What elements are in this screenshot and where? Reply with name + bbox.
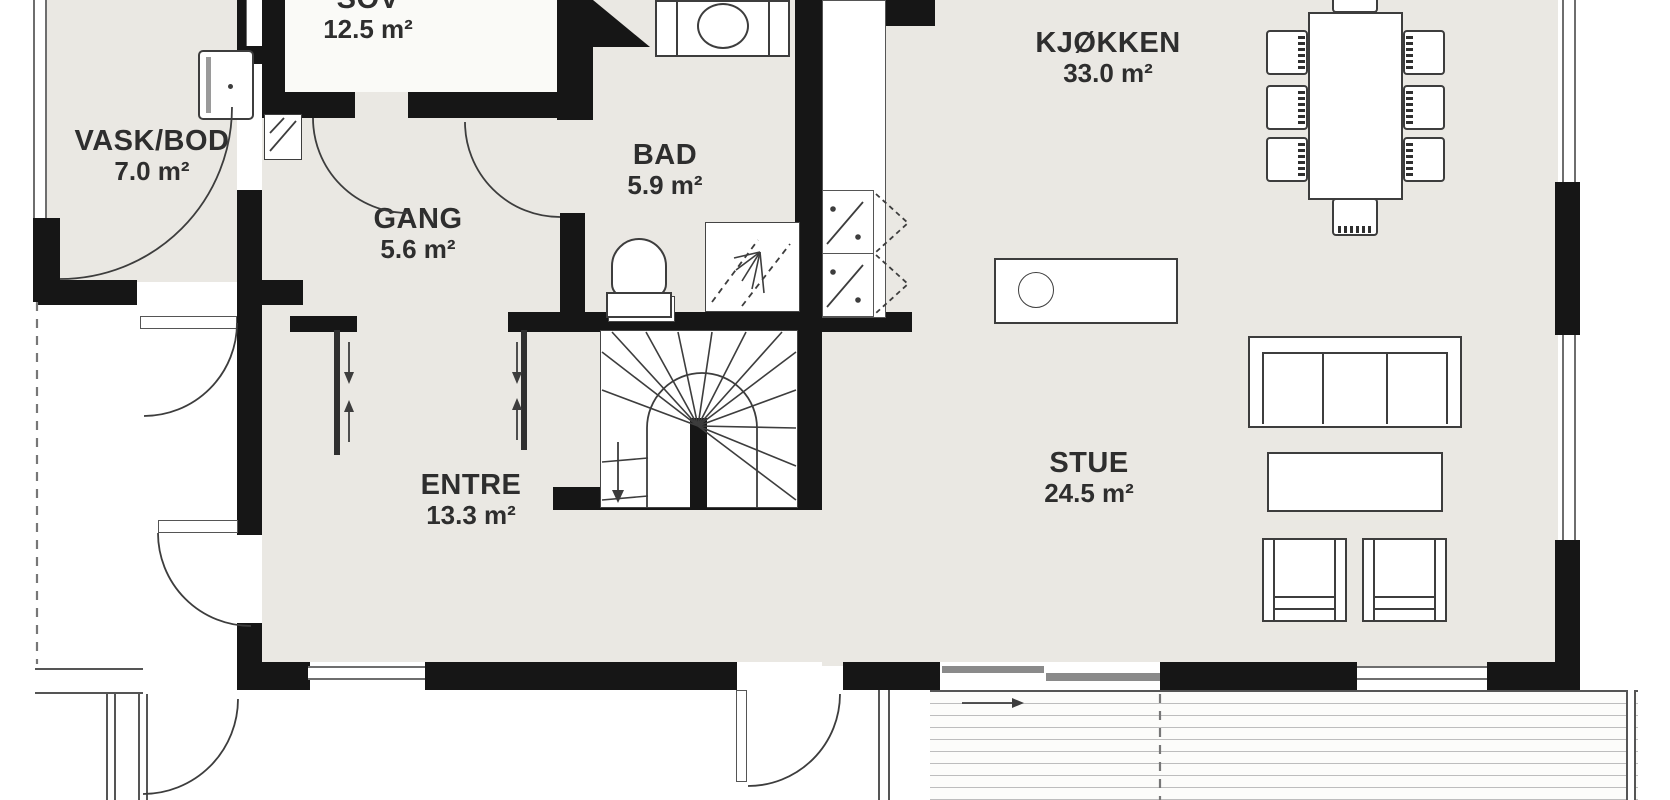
porch-wall — [35, 668, 143, 694]
door-arc — [748, 694, 840, 786]
door-leaf — [140, 316, 237, 329]
sofa-seat-divider — [1322, 354, 1324, 424]
dining-chair — [1266, 137, 1308, 182]
room-label-kjokken: KJØKKEN 33.0 m² — [1028, 28, 1188, 88]
dining-chair — [1266, 85, 1308, 130]
dining-chair — [1403, 30, 1445, 75]
vanity-divider — [676, 2, 678, 55]
armchair-front — [1273, 608, 1336, 610]
window — [308, 666, 425, 680]
door-arc — [144, 323, 237, 416]
room-area: 13.3 m² — [391, 501, 551, 530]
armchair-front — [1373, 608, 1436, 610]
door-arc — [158, 533, 251, 626]
washing-machine-door — [206, 57, 211, 113]
stair-newel — [690, 418, 707, 508]
kitchen-island-sink — [1018, 272, 1054, 308]
room-area: 12.5 m² — [288, 15, 448, 44]
cooktop-cell — [822, 253, 874, 317]
room-label-bad: BAD 5.9 m² — [585, 140, 745, 200]
dining-table — [1308, 12, 1403, 200]
room-kjokken-stue — [822, 0, 1558, 666]
sofa-back — [1262, 352, 1448, 354]
sofa — [1248, 336, 1462, 428]
room-area: 33.0 m² — [1028, 59, 1188, 88]
wall-segment — [290, 316, 357, 332]
sofa-seat-divider — [1386, 354, 1388, 424]
water-heater — [264, 114, 302, 160]
wall-segment — [262, 0, 285, 92]
terrace-deck — [930, 690, 1638, 800]
room-label-vask-bod: VASK/BOD 7.0 m² — [72, 126, 232, 186]
room-name: KJØKKEN — [1028, 28, 1188, 59]
sliding-door-leaf — [334, 330, 340, 455]
wall-segment — [557, 0, 593, 120]
wall-segment — [425, 662, 737, 690]
room-label-sov: SOV 12.5 m² — [288, 0, 448, 44]
sliding-door-panel — [1046, 673, 1160, 681]
sliding-door-panel — [942, 666, 1044, 673]
chair-back — [1406, 91, 1413, 124]
room-label-stue: STUE 24.5 m² — [1009, 448, 1169, 508]
window — [1562, 0, 1576, 182]
floor-plan: SOV 12.5 m² VASK/BOD 7.0 m² GANG 5.6 m² … — [0, 0, 1670, 800]
coffee-table — [1267, 452, 1443, 512]
room-name: BAD — [585, 140, 745, 171]
chair-back — [1298, 91, 1305, 124]
vanity-sink — [697, 3, 749, 49]
dining-chair — [1332, 0, 1378, 13]
room-name: SOV — [288, 0, 448, 15]
wall-segment — [843, 662, 940, 690]
room-name: GANG — [338, 204, 498, 235]
dining-chair — [1403, 85, 1445, 130]
toilet-tank — [606, 292, 672, 318]
deck-edge — [1626, 690, 1636, 800]
cooktop-cell — [822, 190, 874, 254]
chair-back — [1298, 143, 1305, 176]
wall-segment — [1555, 182, 1580, 335]
porch-wall — [106, 694, 116, 800]
porch-wall — [138, 694, 148, 800]
armchair — [1362, 538, 1447, 622]
chair-back — [1406, 143, 1413, 176]
wall-segment — [237, 623, 262, 662]
entry-door-leaf — [736, 690, 747, 782]
chair-back — [1406, 36, 1413, 69]
wall-segment — [237, 190, 262, 302]
vanity-divider — [768, 2, 770, 55]
wall-segment — [237, 305, 262, 535]
porch-wall — [878, 688, 890, 800]
window — [1357, 666, 1487, 680]
door-leaf — [158, 520, 238, 533]
room-below-stair — [557, 510, 822, 662]
wall-segment — [560, 213, 585, 312]
room-area: 24.5 m² — [1009, 479, 1169, 508]
room-area: 5.9 m² — [585, 171, 745, 200]
room-name: ENTRE — [391, 470, 551, 501]
shower — [705, 222, 800, 312]
armchair — [1262, 538, 1347, 622]
room-label-gang: GANG 5.6 m² — [338, 204, 498, 264]
room-label-entre: ENTRE 13.3 m² — [391, 470, 551, 530]
wall-segment — [797, 315, 822, 510]
sliding-door-leaf — [521, 330, 527, 450]
sofa-arm — [1262, 352, 1264, 424]
armchair-front — [1373, 596, 1436, 598]
wall-segment — [1555, 540, 1580, 690]
room-name: VASK/BOD — [72, 126, 232, 157]
chair-back — [1298, 36, 1305, 69]
room-area: 7.0 m² — [72, 157, 232, 186]
window — [1562, 335, 1576, 540]
room-name: STUE — [1009, 448, 1169, 479]
chair-back — [1338, 226, 1372, 233]
dining-chair — [1266, 30, 1308, 75]
dining-chair — [1403, 137, 1445, 182]
washing-machine — [198, 50, 254, 120]
toilet-bowl — [611, 238, 667, 298]
room-area: 5.6 m² — [338, 235, 498, 264]
door-arc — [143, 699, 238, 794]
wall-segment — [237, 662, 310, 690]
washing-machine-knob — [228, 84, 233, 89]
wall-segment — [36, 280, 137, 305]
window — [33, 0, 47, 218]
sofa-arm — [1446, 352, 1448, 424]
wall-segment — [1160, 662, 1357, 690]
dining-chair — [1332, 198, 1378, 236]
armchair-front — [1273, 596, 1336, 598]
